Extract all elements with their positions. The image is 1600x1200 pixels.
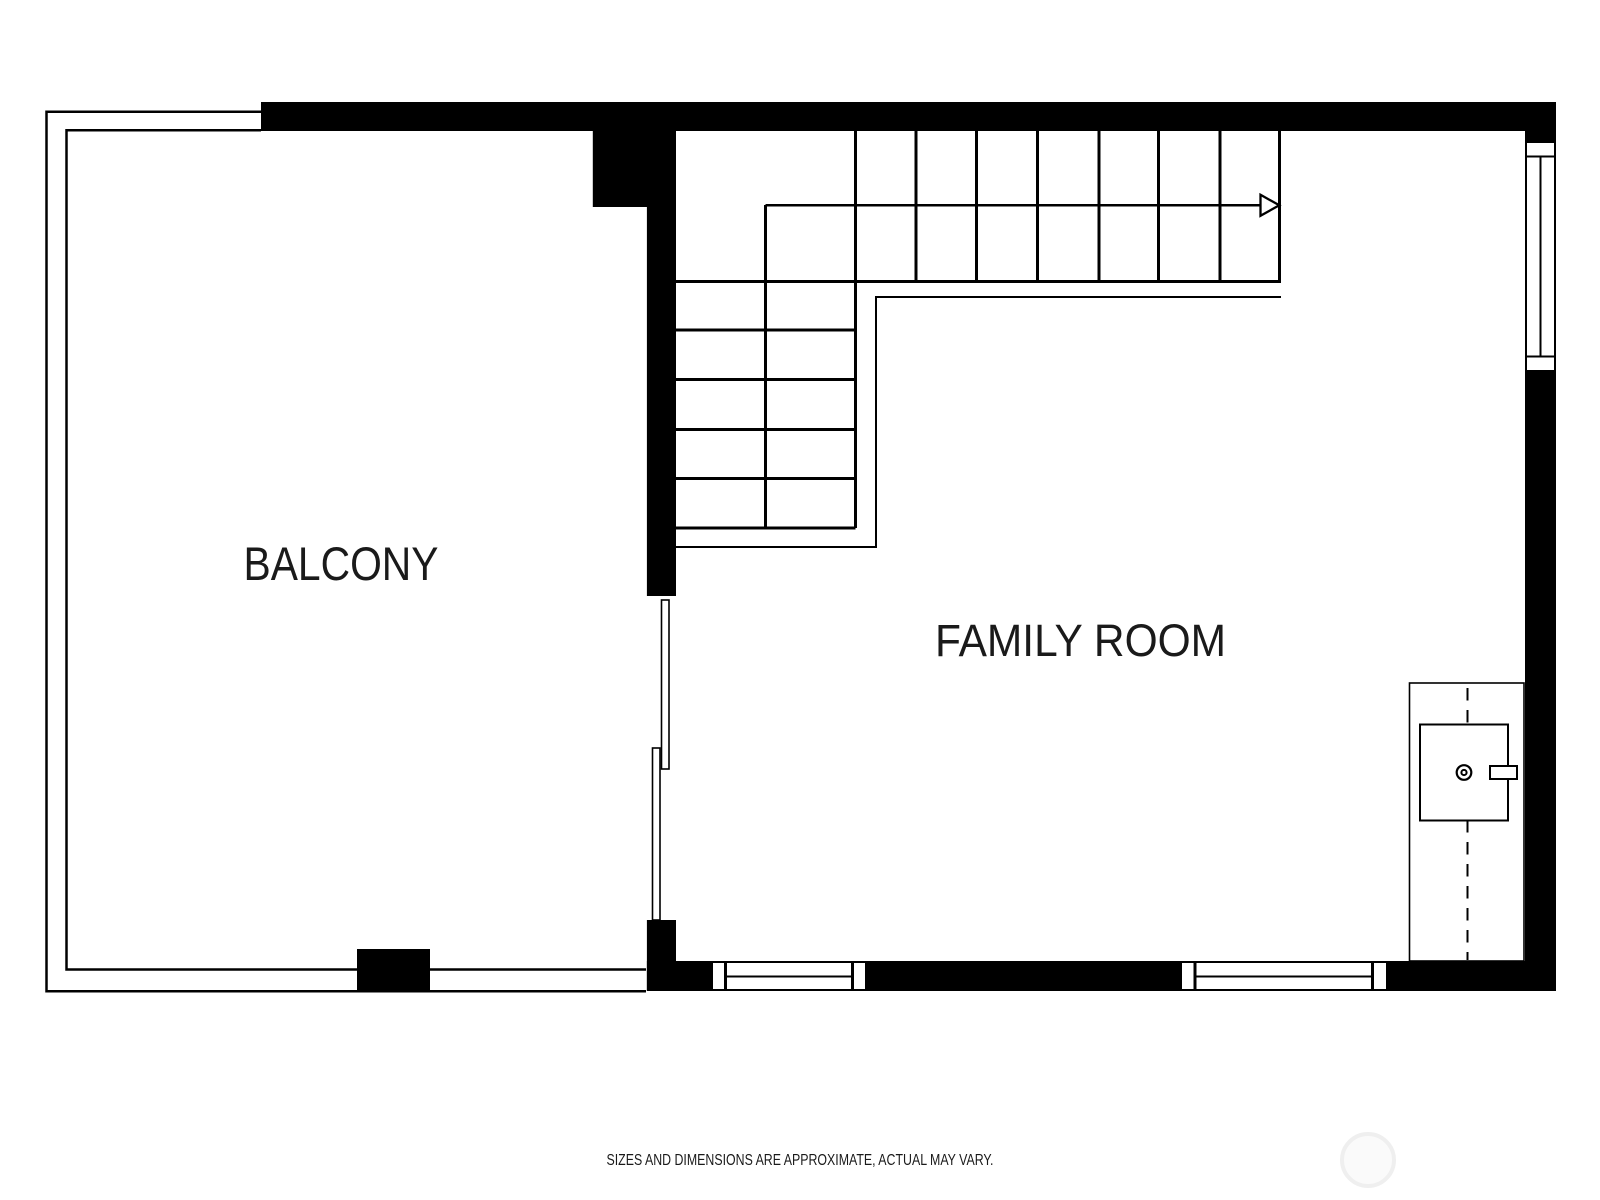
svg-text:BALCONY: BALCONY (244, 537, 439, 590)
svg-text:FAMILY ROOM: FAMILY ROOM (935, 615, 1226, 666)
svg-text:SIZES AND DIMENSIONS ARE APPRO: SIZES AND DIMENSIONS ARE APPROXIMATE, AC… (607, 1152, 994, 1169)
